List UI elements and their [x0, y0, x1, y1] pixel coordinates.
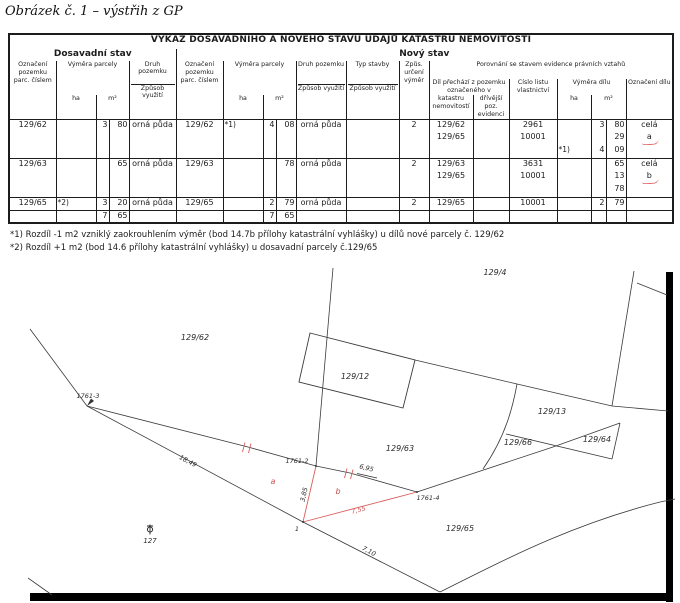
cell-dil-m2b: 79: [606, 197, 626, 210]
cell-old-m2b: 80: [109, 119, 129, 158]
point-label-1761-4: 1761-4: [416, 494, 439, 502]
cell-new-druh: orná půda: [296, 158, 346, 197]
header-new-area: Výměra parcely: [223, 61, 296, 95]
red-hatch-mark-2: [345, 469, 354, 480]
cell-dil-m2b: 78: [606, 184, 626, 197]
cell-dil-note: [557, 119, 591, 132]
cell-typ: [346, 158, 399, 197]
map-bottom-border-bar: [30, 593, 673, 601]
boundary-spur-to-edge: [637, 283, 667, 295]
totals-typ: [346, 210, 399, 223]
header-old-ha: ha: [56, 95, 96, 119]
point-marker-1761-4: [416, 491, 418, 493]
cell-dil-lv: 3631: [509, 158, 557, 171]
parcel-label-129-12: 129/12: [341, 372, 369, 381]
header-compare: Porovnání se stavem evidence právních vz…: [429, 61, 673, 79]
cell-dil-m2a: 3: [591, 119, 606, 132]
parcel-label-129-65: 129/65: [446, 524, 474, 533]
cell-dil-m2b: 29: [606, 132, 626, 145]
totals-ozn: [626, 210, 673, 223]
cell-zpus: 2: [399, 197, 429, 210]
cell-dil-driv: [473, 132, 509, 145]
cell-old-m2b: 65: [109, 158, 129, 197]
cell-dil-m2b: 09: [606, 145, 626, 158]
cell-new-m2a: 2: [263, 197, 276, 210]
cell-dil-ozn: celá: [626, 158, 673, 171]
header-driv: dřívější poz. evidenci: [473, 95, 509, 119]
cell-dil-lv: 10001: [509, 132, 557, 145]
cell-old-m2a: 3: [96, 197, 109, 210]
cell-dil-kat: 129/65: [429, 171, 473, 184]
cell-dil-ozn: [626, 197, 673, 210]
header-dil-m2: m²: [591, 95, 626, 119]
cell-old-note: [56, 158, 96, 197]
map-right-border-bar: [666, 272, 673, 602]
cell-dil-ozn: celá: [626, 119, 673, 132]
parcel-label-129-62: 129/62: [181, 333, 209, 342]
boundary-main-diagonal: [87, 406, 440, 592]
cell-old-druh: orná půda: [129, 197, 176, 210]
old-boundary-vertical-2: [612, 271, 634, 406]
part-letter-a: a: [271, 477, 276, 486]
cell-old-parcel: 129/62: [9, 119, 56, 158]
cell-typ: [346, 119, 399, 158]
cell-zpus: 2: [399, 119, 429, 158]
totals-kat: [429, 210, 473, 223]
section-old-header: Dosavadní stav: [9, 49, 176, 61]
cell-new-m2a: [263, 158, 276, 197]
cell-dil-note: [557, 132, 591, 145]
cell-dil-driv: [473, 171, 509, 184]
cell-dil-ozn: b: [626, 171, 673, 184]
parcel-label-129-63: 129/63: [386, 444, 414, 453]
cell-old-m2a: 3: [96, 119, 109, 158]
cell-old-m2b: 20: [109, 197, 129, 210]
boundary-long-top: [415, 360, 668, 411]
boundary-64-right-edge: [612, 423, 620, 459]
cell-old-parcel: 129/63: [9, 158, 56, 197]
cell-dil-kat: [429, 145, 473, 158]
cell-dil-driv: [473, 145, 509, 158]
totals-old-m2b: 65: [109, 210, 129, 223]
cell-dil-driv: [473, 197, 509, 210]
cell-dil-note: [557, 158, 591, 171]
totals-new-note: [223, 210, 263, 223]
old-boundary-vertical-1: [316, 268, 333, 466]
point-label-1: 1: [295, 525, 299, 533]
cell-dil-driv: [473, 184, 509, 197]
cell-dil-driv: [473, 158, 509, 171]
cell-dil-kat: 129/65: [429, 132, 473, 145]
totals-old-m2a: 7: [96, 210, 109, 223]
header-old-m2: m²: [96, 95, 129, 119]
header-old-landtype: Druh pozemku Způsob využití: [129, 61, 176, 119]
survey-point-symbol-127: [147, 525, 153, 535]
header-typ-stavby: Typ stavby: [348, 61, 398, 85]
boundary-upper: [87, 406, 417, 492]
header-dil-ozn: Označení dílu: [626, 79, 673, 119]
totals-old-druh: [129, 210, 176, 223]
figure-caption: Obrázek č. 1 – výstřih z GP: [5, 4, 183, 19]
cell-dil-m2a: 2: [591, 197, 606, 210]
totals-new-druh: [296, 210, 346, 223]
cell-dil-lv: 10001: [509, 197, 557, 210]
cell-dil-ozn: [626, 184, 673, 197]
parcel-label-129-66: 129/66: [504, 438, 532, 447]
header-dil-ha: ha: [557, 95, 591, 119]
cell-dil-note: [557, 184, 591, 197]
cell-dil-note: [557, 197, 591, 210]
measure-label-7-55: 7,55: [350, 504, 366, 515]
cell-old-note: [56, 119, 96, 158]
cell-dil-lv: 2961: [509, 119, 557, 132]
totals-old-parcel: [9, 210, 56, 223]
header-dil-from: Díl přechází z pozemku označeného v: [429, 79, 509, 95]
cell-dil-m2b: 80: [606, 119, 626, 132]
header-new-druh: Druh pozemku: [298, 61, 345, 85]
header-kat: katastru nemovitostí: [429, 95, 473, 119]
point-label-127: 127: [143, 537, 157, 545]
vykaz-table: VÝKAZ DOSAVADNÍHO A NOVÉHO STAVU ÚDAJŮ K…: [8, 33, 674, 224]
header-old-parcel: Označení pozemku parc. číslem: [9, 61, 56, 119]
cell-new-note: [223, 197, 263, 210]
header-lv: Číslo listu vlastnictví: [509, 79, 557, 119]
point-label-1761-2: 1761-2: [285, 457, 308, 465]
totals-new-m2a: 7: [263, 210, 276, 223]
header-new-m2: m²: [263, 95, 296, 119]
cell-new-m2a: 4: [263, 119, 276, 158]
cell-new-druh: orná půda: [296, 197, 346, 210]
cell-new-parcel: 129/65: [176, 197, 223, 210]
parcel-label-129-4: 129/4: [483, 268, 506, 277]
cell-new-druh: orná půda: [296, 119, 346, 158]
header-new-parcel: Označení pozemku parc. číslem: [176, 61, 223, 119]
parcel-label-129-64: 129/64: [583, 435, 611, 444]
totals-lv: [509, 210, 557, 223]
boundary-63-66-curve: [483, 384, 517, 469]
point-marker-1761-2: [315, 465, 317, 467]
measure-label-6-95: 6,95: [358, 462, 374, 473]
header-determination: Způs. určení výměr: [399, 61, 429, 119]
boundary-corner-stub: [28, 578, 52, 595]
cell-new-parcel: 129/62: [176, 119, 223, 158]
header-old-area: Výměra parcely: [56, 61, 129, 95]
boundary-1761-4-northeast: [417, 423, 620, 492]
red-hatch-mark-1: [243, 443, 252, 454]
cell-dil-driv: [473, 119, 509, 132]
totals-dil-note: [557, 210, 591, 223]
cell-old-druh: orná půda: [129, 119, 176, 158]
boundary-bottom-right: [440, 499, 675, 592]
cell-new-parcel: 129/63: [176, 158, 223, 197]
point-marker-1: [302, 521, 304, 523]
dil-letter-red-underline: a: [645, 132, 654, 142]
cell-dil-note: *1): [557, 145, 591, 158]
dil-letter-red-underline: b: [645, 171, 654, 181]
cell-old-note: *2): [56, 197, 96, 210]
section-new-header: Nový stav: [176, 49, 673, 61]
cell-dil-m2b: 13: [606, 171, 626, 184]
cell-dil-kat: 129/63: [429, 158, 473, 171]
cell-dil-lv: 10001: [509, 171, 557, 184]
cell-dil-ozn: [626, 145, 673, 158]
footnote-1: *1) Rozdíl -1 m2 vzniklý zaokrouhlením v…: [10, 230, 504, 240]
cell-dil-m2a: 4: [591, 145, 606, 158]
cell-dil-kat: 129/65: [429, 197, 473, 210]
cell-dil-lv: [509, 184, 557, 197]
cell-dil-lv: [509, 145, 557, 158]
cell-dil-kat: [429, 184, 473, 197]
totals-dil-m2b: [606, 210, 626, 223]
measure-label-18-49: 18,49: [178, 453, 198, 469]
part-letter-b: b: [335, 487, 340, 496]
footnote-2: *2) Rozdíl +1 m2 (bod 14.6 přílohy katas…: [10, 243, 377, 253]
page: Obrázek č. 1 – výstřih z GP VÝKAZ DOSAVA…: [0, 0, 680, 603]
cell-dil-m2a: [591, 184, 606, 197]
cell-new-note: [223, 158, 263, 197]
totals-dil-m2a: [591, 210, 606, 223]
totals-new-m2b: 65: [276, 210, 296, 223]
header-old-usage: Způsob využití: [131, 85, 175, 108]
header-new-usage: Způsob využití: [298, 85, 345, 108]
header-new-ha: ha: [223, 95, 263, 119]
cell-zpus: 2: [399, 158, 429, 197]
cell-new-note: *1): [223, 119, 263, 158]
totals-zpus: [399, 210, 429, 223]
header-old-druh: Druh pozemku: [131, 61, 175, 85]
cell-old-parcel: 129/65: [9, 197, 56, 210]
cell-dil-ozn: a: [626, 132, 673, 145]
building-outline-129-12: [299, 333, 415, 408]
totals-driv: [473, 210, 509, 223]
cell-dil-m2a: [591, 158, 606, 171]
totals-new-parcel: [176, 210, 223, 223]
cadastral-map: 129/4 129/62 129/12 129/13 129/66 129/64…: [28, 266, 676, 602]
cell-old-druh: orná půda: [129, 158, 176, 197]
cell-dil-note: [557, 171, 591, 184]
cell-new-m2b: 79: [276, 197, 296, 210]
cell-dil-kat: 129/62: [429, 119, 473, 132]
cell-new-m2b: 08: [276, 119, 296, 158]
header-new-landtype: Druh pozemku Způsob využití: [296, 61, 346, 119]
cell-dil-m2a: [591, 171, 606, 184]
header-building-type: Typ stavby Způsob využití: [346, 61, 399, 119]
cell-dil-m2a: [591, 132, 606, 145]
cell-new-m2b: 78: [276, 158, 296, 197]
header-dil-area: Výměra dílu: [557, 79, 626, 95]
cell-typ: [346, 197, 399, 210]
cell-old-m2a: [96, 158, 109, 197]
point-label-1761-3: 1761-3: [76, 392, 99, 400]
parcel-label-129-13: 129/13: [538, 407, 566, 416]
cell-dil-m2b: 65: [606, 158, 626, 171]
table-title: VÝKAZ DOSAVADNÍHO A NOVÉHO STAVU ÚDAJŮ K…: [9, 34, 673, 49]
totals-old-note: [56, 210, 96, 223]
header-typ-usage: Způsob využití: [348, 85, 398, 108]
